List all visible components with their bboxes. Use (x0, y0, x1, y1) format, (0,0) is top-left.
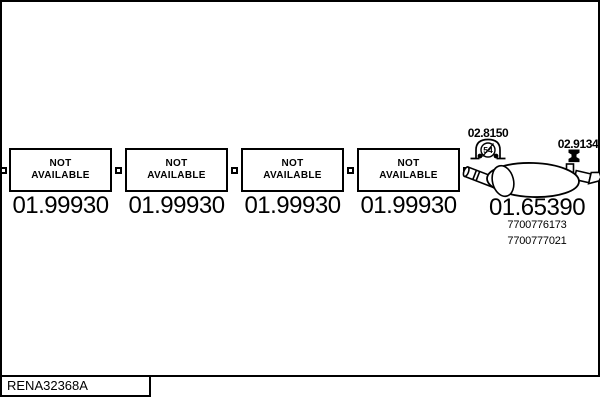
hanger-icon (569, 150, 580, 163)
status-line: AVAILABLE (379, 170, 437, 183)
status-line: NOT (281, 158, 303, 171)
status-line: AVAILABLE (147, 170, 205, 183)
pipe-connector-node (0, 167, 7, 174)
oem-number: 7700776173 (477, 219, 597, 231)
status-line: AVAILABLE (31, 170, 89, 183)
status-line: NOT (397, 158, 419, 171)
diagram-canvas: NOT AVAILABLE NOT AVAILABLE NOT AVAILABL… (0, 0, 600, 400)
part-code[interactable]: 01.99930 (117, 193, 236, 219)
hanger-code[interactable]: 02.9134 (554, 137, 600, 151)
clamp-code[interactable]: 02.8150 (462, 126, 514, 140)
pipe-connector-node (115, 167, 122, 174)
clamp-icon: 54 (471, 140, 506, 159)
part-code[interactable]: 01.99930 (1, 193, 120, 219)
pipe-connector-node (231, 167, 238, 174)
status-line: AVAILABLE (263, 170, 321, 183)
part-code[interactable]: 01.99930 (349, 193, 468, 219)
status-line: NOT (165, 158, 187, 171)
drawing-reference-box: RENA32368A (0, 375, 151, 397)
status-line: NOT (49, 158, 71, 171)
drawing-reference: RENA32368A (7, 378, 88, 393)
not-available-box[interactable]: NOT AVAILABLE (357, 148, 460, 192)
oem-number: 7700777021 (477, 235, 597, 247)
not-available-box[interactable]: NOT AVAILABLE (125, 148, 228, 192)
not-available-box[interactable]: NOT AVAILABLE (241, 148, 344, 192)
not-available-box[interactable]: NOT AVAILABLE (9, 148, 112, 192)
part-code[interactable]: 01.99930 (233, 193, 352, 219)
silencer-part-code[interactable]: 01.65390 (477, 195, 597, 221)
pipe-connector-node (347, 167, 354, 174)
